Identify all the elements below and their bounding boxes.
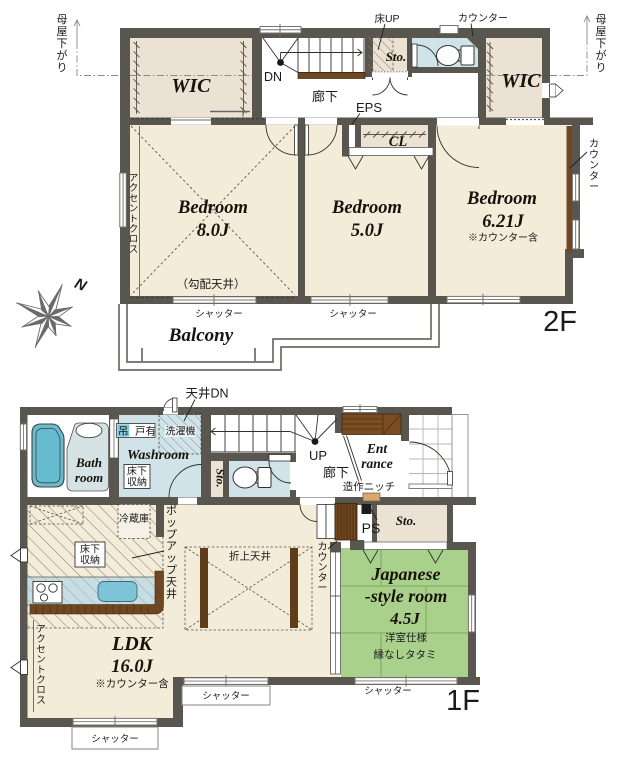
svg-text:シャッター: シャッター: [195, 309, 243, 320]
svg-text:屋: 屋: [596, 25, 607, 38]
svg-text:吊: 吊: [118, 426, 129, 438]
svg-text:1F: 1F: [446, 685, 480, 717]
svg-text:屋: 屋: [57, 25, 68, 38]
svg-text:room: room: [75, 470, 103, 485]
svg-text:ッ: ッ: [166, 553, 177, 565]
svg-text:Bedroom: Bedroom: [466, 189, 537, 209]
svg-text:下: 下: [596, 38, 607, 50]
svg-text:Bedroom: Bedroom: [177, 198, 248, 218]
svg-text:戸有: 戸有: [135, 425, 156, 438]
svg-text:16.0J: 16.0J: [111, 657, 153, 677]
svg-text:WIC: WIC: [172, 75, 212, 97]
svg-text:PS: PS: [362, 520, 381, 536]
svg-text:天: 天: [166, 576, 177, 588]
svg-text:※カウンター含: ※カウンター含: [468, 231, 538, 244]
svg-text:ー: ー: [318, 583, 328, 594]
svg-text:UP: UP: [309, 448, 327, 463]
svg-text:LDK: LDK: [111, 633, 154, 655]
svg-text:※カウンター含: ※カウンター含: [95, 677, 169, 690]
svg-text:プ: プ: [166, 564, 177, 577]
svg-text:シャッター: シャッター: [364, 686, 412, 697]
svg-text:ウ: ウ: [318, 551, 328, 563]
svg-text:DN: DN: [264, 70, 282, 84]
svg-text:Balcony: Balcony: [168, 325, 234, 346]
svg-text:2F: 2F: [543, 306, 577, 338]
svg-text:シャッター: シャッター: [329, 309, 377, 320]
svg-text:母: 母: [57, 13, 68, 26]
svg-text:床下: 床下: [127, 465, 147, 478]
svg-text:Sto.: Sto.: [386, 49, 407, 64]
svg-text:8.0J: 8.0J: [197, 221, 230, 241]
svg-text:Washroom: Washroom: [127, 448, 189, 463]
svg-text:CL: CL: [389, 134, 408, 150]
svg-text:冷蔵庫: 冷蔵庫: [119, 512, 149, 525]
svg-text:廊下: 廊下: [323, 465, 349, 480]
svg-text:シャッター: シャッター: [91, 734, 139, 745]
svg-text:が: が: [57, 48, 68, 62]
svg-text:造作ニッチ: 造作ニッチ: [343, 480, 396, 493]
svg-text:Japanese: Japanese: [371, 564, 441, 584]
svg-text:（勾配天井）: （勾配天井）: [177, 277, 246, 291]
svg-text:Sto.: Sto.: [396, 513, 417, 528]
svg-text:タ: タ: [318, 572, 328, 584]
svg-text:下: 下: [57, 38, 68, 50]
svg-text:収納: 収納: [127, 476, 147, 489]
svg-text:ス: ス: [129, 244, 139, 255]
svg-text:収納: 収納: [80, 554, 100, 567]
svg-text:5.0J: 5.0J: [351, 221, 384, 241]
svg-text:プ: プ: [166, 528, 177, 541]
svg-text:床UP: 床UP: [374, 12, 399, 25]
svg-text:り: り: [57, 61, 68, 74]
svg-text:タ: タ: [589, 170, 599, 182]
svg-text:ポ: ポ: [166, 504, 177, 517]
svg-text:カ: カ: [589, 138, 599, 150]
svg-text:縁なしタタミ: 縁なしタタミ: [374, 648, 437, 661]
svg-text:ー: ー: [589, 182, 599, 193]
svg-text:Bedroom: Bedroom: [331, 198, 402, 218]
svg-text:ッ: ッ: [166, 517, 177, 529]
svg-text:rance: rance: [361, 456, 393, 471]
svg-text:Sto.: Sto.: [214, 468, 228, 487]
svg-text:カウンター: カウンター: [458, 13, 508, 25]
svg-text:床下: 床下: [80, 543, 100, 556]
svg-text:WIC: WIC: [502, 70, 542, 92]
svg-text:折上天井: 折上天井: [229, 550, 271, 563]
svg-text:り: り: [596, 61, 607, 74]
svg-text:カ: カ: [318, 541, 328, 553]
svg-text:シャッター: シャッター: [202, 691, 250, 702]
svg-text:が: が: [596, 48, 607, 62]
svg-text:-style room: -style room: [365, 586, 448, 606]
svg-text:ウ: ウ: [589, 149, 599, 161]
svg-text:6.21J: 6.21J: [482, 212, 524, 232]
svg-text:ス: ス: [36, 695, 46, 706]
svg-text:洗濯機: 洗濯機: [166, 425, 196, 438]
svg-text:ア: ア: [166, 541, 177, 553]
svg-text:天井DN: 天井DN: [185, 387, 228, 401]
svg-text:母: 母: [596, 13, 607, 26]
svg-text:洋室仕様: 洋室仕様: [385, 631, 427, 644]
svg-text:廊下: 廊下: [312, 89, 338, 104]
svg-text:EPS: EPS: [356, 100, 382, 115]
svg-text:ン: ン: [589, 161, 599, 172]
svg-text:Bath: Bath: [75, 455, 102, 470]
svg-text:井: 井: [166, 586, 177, 600]
svg-text:Ent: Ent: [366, 441, 389, 456]
svg-text:4.5J: 4.5J: [389, 609, 420, 628]
